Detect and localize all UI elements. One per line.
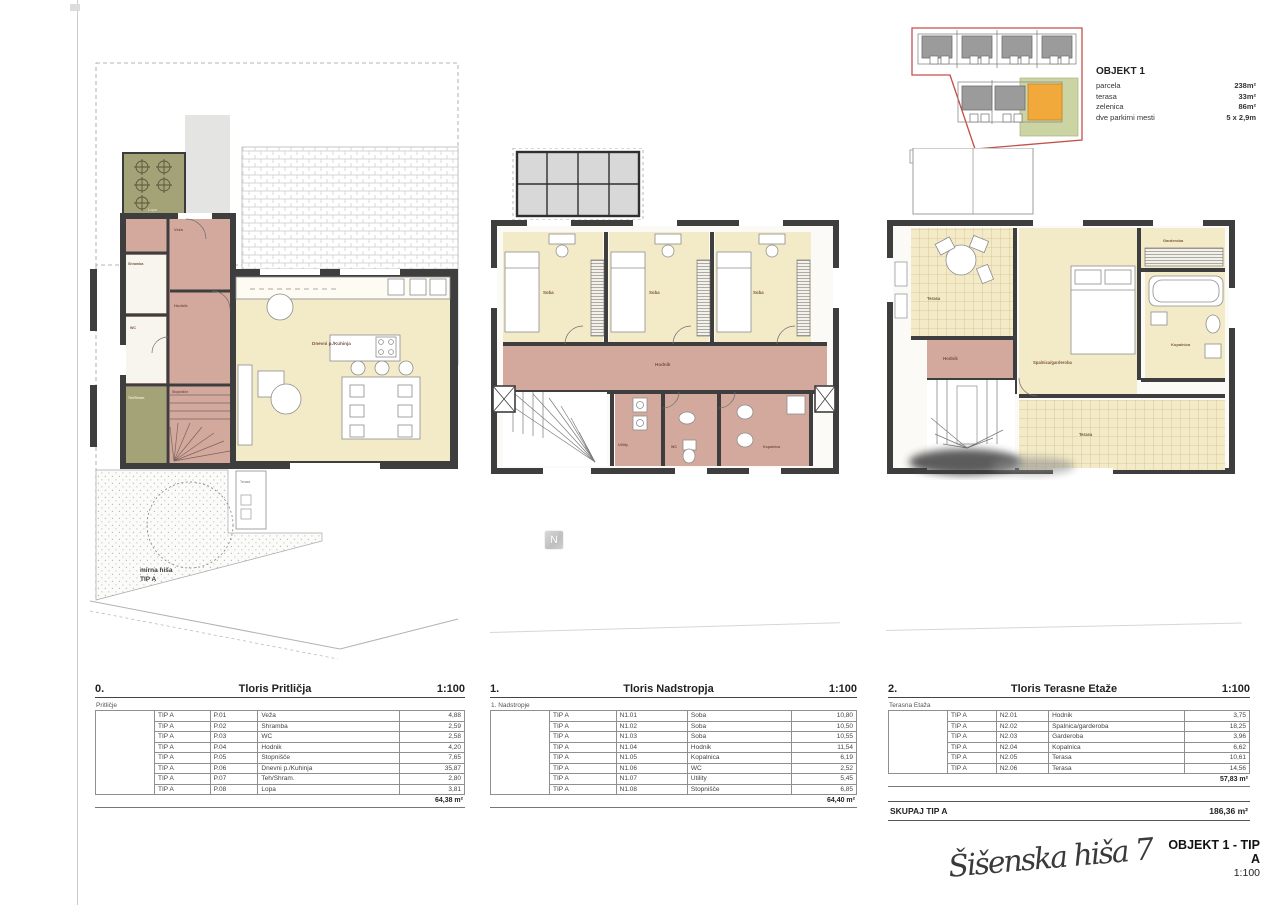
table-cell: Stopnišče	[258, 753, 400, 764]
survey-line	[490, 622, 840, 633]
table-cell: N2.04	[996, 742, 1048, 753]
table-cell: TIP A	[550, 721, 617, 732]
table-cell: N1.03	[616, 732, 687, 743]
sheet-scale: 1:100	[1162, 867, 1260, 879]
table-cell: TIP A	[550, 774, 617, 785]
area-table-ground: 0. Tloris Pritličja 1:100 Pritličje TIP …	[95, 683, 465, 808]
table-scale: 1:100	[415, 683, 465, 695]
table-cell: 6,19	[792, 753, 857, 764]
table-total: 64,38 m²	[95, 795, 465, 808]
room-label-kopalnica2: Kopalnica	[1171, 342, 1191, 347]
room-label-dnevni: Dnevni p./Kuhinja	[312, 341, 351, 346]
table-cell: Veža	[258, 711, 400, 722]
room-label-garderoba: Garderoba	[1163, 238, 1184, 243]
table-cell: P.02	[210, 721, 258, 732]
table-cell: Spalnica/garderoba	[1049, 721, 1185, 732]
table-cell: Kopalnica	[687, 753, 791, 764]
title-block: Šišenska hiša 7 OBJEKT 1 - TIP A 1:100	[948, 838, 1260, 879]
room-label-teh: Teh/Shram.	[128, 396, 145, 400]
table-cell: 4,88	[400, 711, 465, 722]
site-key-row: zelenica 86m²	[1096, 102, 1256, 113]
table-cell: N1.06	[616, 763, 687, 774]
table-cell: TIP A	[155, 732, 211, 743]
table-cell: N2.06	[996, 763, 1048, 774]
table-cell: Hodnik	[687, 742, 791, 753]
page-edge-line	[77, 0, 78, 905]
table-row: TIP AN1.01Soba10,80	[491, 711, 857, 722]
table-scale: 1:100	[1200, 683, 1250, 695]
room-table: TIP AP.01Veža4,88TIP AP.02Shramba2,59TIP…	[95, 710, 465, 795]
table-cell: N2.03	[996, 732, 1048, 743]
table-subtitle: 1. Nadstropje	[491, 702, 857, 709]
table-cell: TIP A	[155, 753, 211, 764]
room-label-spalnica: Spalnica/garderoba	[1033, 360, 1073, 365]
project-signature-logo: Šišenska hiša 7	[947, 832, 1154, 885]
site-key-row: parcela 238m²	[1096, 81, 1256, 92]
table-cell: 10,55	[792, 732, 857, 743]
type-swatch-cell	[96, 711, 155, 795]
room-label-terasa: Terasa	[240, 480, 250, 484]
table-cell: 10,50	[792, 721, 857, 732]
roof-outline	[913, 148, 1033, 214]
driveway-strip	[185, 115, 230, 215]
wardrobe-terrace	[1145, 248, 1223, 266]
table-cell: P.06	[210, 763, 258, 774]
table-total: 64,40 m²	[490, 795, 857, 808]
table-cell: Utility	[687, 774, 791, 785]
room-label-terasa-bottom: Terasa	[1079, 432, 1093, 437]
table-title: Tloris Terasne Etaže	[928, 683, 1200, 695]
room-label-shramba: Shramba	[128, 262, 144, 266]
site-key-title: OBJEKT 1	[1096, 66, 1256, 77]
table-row: TIP AP.01Veža4,88	[96, 711, 465, 722]
site-key-legend: OBJEKT 1 parcela 238m² terasa 33m² zelen…	[1096, 66, 1256, 123]
table-cell: N1.08	[616, 784, 687, 795]
table-cell: 3,75	[1185, 711, 1250, 722]
table-index: 0.	[95, 683, 135, 695]
room-label-utility: Utility	[618, 443, 628, 447]
table-cell: N2.05	[996, 753, 1048, 764]
table-cell: 7,65	[400, 753, 465, 764]
table-cell: TIP A	[550, 732, 617, 743]
table-cell: Soba	[687, 711, 791, 722]
table-cell: TIP A	[155, 742, 211, 753]
table-cell: 35,87	[400, 763, 465, 774]
room-label-hodnik2: Hodnik	[943, 356, 958, 361]
table-cell: Terasa	[1049, 753, 1185, 764]
page-corner-mark	[70, 4, 80, 11]
stairs-first	[503, 392, 607, 466]
table-cell: TIP A	[948, 721, 997, 732]
table-cell: Terasa	[1049, 763, 1185, 774]
garden-note-line2: TIP A	[140, 576, 157, 583]
site-key-row: terasa 33m²	[1096, 92, 1256, 103]
site-key-plan	[900, 22, 1100, 164]
table-cell: 10,61	[1185, 753, 1250, 764]
table-scale: 1:100	[807, 683, 857, 695]
table-cell: Shramba	[258, 721, 400, 732]
table-cell: 10,80	[792, 711, 857, 722]
room-label-soba3: Soba	[753, 290, 764, 295]
room-label-stopnisce: Stopnišče	[172, 390, 188, 394]
table-cell: N1.07	[616, 774, 687, 785]
table-cell: P.07	[210, 774, 258, 785]
garden-area	[96, 470, 322, 600]
summary-label: SKUPAJ TIP A	[890, 806, 947, 816]
table-subtitle: Pritličje	[96, 702, 465, 709]
site-key-row: dve parkirni mesti 5 x 2,9m	[1096, 113, 1256, 124]
table-cell: TIP A	[948, 753, 997, 764]
room-lopa: Lopa	[123, 153, 185, 217]
table-index: 1.	[490, 683, 530, 695]
terrace-floor-plan: Terasa Hodnik Spalnica/garderoba Gardero…	[883, 148, 1238, 480]
room-table: TIP AN1.01Soba10,80TIP AN1.02Soba10,50TI…	[490, 710, 857, 795]
survey-line	[886, 623, 1242, 631]
room-label-lopa: Lopa	[148, 207, 158, 212]
table-cell: 14,56	[1185, 763, 1250, 774]
terrace-hatch-area	[242, 147, 458, 269]
table-cell: WC	[258, 732, 400, 743]
table-cell: 4,20	[400, 742, 465, 753]
table-cell: 2,59	[400, 721, 465, 732]
table-cell: P.08	[210, 784, 258, 795]
ground-floor-plan: mirna hiša TIP A Lopa	[90, 55, 465, 665]
table-cell: 6,62	[1185, 742, 1250, 753]
room-label-kopalnica1: Kopalnica	[763, 445, 781, 449]
room-label-hodnik1: Hodnik	[655, 362, 671, 367]
table-cell: Hodnik	[258, 742, 400, 753]
area-table-first: 1. Tloris Nadstropja 1:100 1. Nadstropje…	[490, 683, 857, 808]
room-label-terasa-top: Terasa	[927, 296, 941, 301]
table-cell: 2,52	[792, 763, 857, 774]
type-swatch-cell	[889, 711, 948, 774]
table-cell: N2.02	[996, 721, 1048, 732]
table-cell: Hodnik	[1049, 711, 1185, 722]
table-cell: TIP A	[550, 742, 617, 753]
room-label-soba1: Soba	[543, 290, 554, 295]
table-header: 1. Tloris Nadstropja 1:100	[490, 683, 857, 698]
room-label-soba2: Soba	[649, 290, 660, 295]
table-cell: P.04	[210, 742, 258, 753]
table-cell: TIP A	[948, 763, 997, 774]
room-table: TIP AN2.01Hodnik3,75TIP AN2.02Spalnica/g…	[888, 710, 1250, 774]
table-index: 2.	[888, 683, 928, 695]
sheet-title: OBJEKT 1 - TIP A	[1162, 838, 1260, 866]
table-cell: WC	[687, 763, 791, 774]
garden-note-line1: mirna hiša	[140, 567, 173, 574]
table-cell: N1.02	[616, 721, 687, 732]
table-cell: 11,54	[792, 742, 857, 753]
table-cell: Soba	[687, 732, 791, 743]
table-cell: Dnevni p./Kuhinja	[258, 763, 400, 774]
row-house-block-upper	[918, 30, 1076, 68]
table-cell: N1.05	[616, 753, 687, 764]
table-title: Tloris Pritličja	[135, 683, 415, 695]
row-house-block-lower	[958, 78, 1078, 136]
table-total: 57,83 m²	[888, 774, 1250, 787]
table-cell: Soba	[687, 721, 791, 732]
table-cell: TIP A	[155, 763, 211, 774]
table-cell: Stopnišče	[687, 784, 791, 795]
table-row: TIP AN2.01Hodnik3,75	[889, 711, 1250, 722]
table-cell: P.05	[210, 753, 258, 764]
table-cell: TIP A	[155, 711, 211, 722]
table-cell: 3,96	[1185, 732, 1250, 743]
table-cell: Teh/Shram.	[258, 774, 400, 785]
table-cell: TIP A	[155, 774, 211, 785]
room-label-wc: WC	[130, 326, 136, 330]
table-cell: Kopalnica	[1049, 742, 1185, 753]
table-cell: 5,45	[792, 774, 857, 785]
table-cell: 2,80	[400, 774, 465, 785]
table-cell: TIP A	[948, 711, 997, 722]
table-title: Tloris Nadstropja	[530, 683, 807, 695]
table-cell: TIP A	[948, 732, 997, 743]
highlighted-unit-objekt1	[1028, 84, 1062, 120]
table-cell: TIP A	[550, 753, 617, 764]
table-subtitle: Terasna Etaža	[889, 702, 1250, 709]
table-cell: 6,85	[792, 784, 857, 795]
summary-value: 186,36 m²	[1209, 806, 1248, 816]
summary-row: SKUPAJ TIP A 186,36 m²	[888, 801, 1250, 821]
table-cell: P.03	[210, 732, 258, 743]
table-cell: TIP A	[550, 763, 617, 774]
table-cell: TIP A	[155, 721, 211, 732]
room-label-veza: Veža	[174, 227, 184, 232]
table-cell: N1.04	[616, 742, 687, 753]
table-cell: N2.01	[996, 711, 1048, 722]
table-cell: N1.01	[616, 711, 687, 722]
table-header: 2. Tloris Terasne Etaže 1:100	[888, 683, 1250, 698]
table-header: 0. Tloris Pritličja 1:100	[95, 683, 465, 698]
table-cell: 18,25	[1185, 721, 1250, 732]
area-table-terrace: 2. Tloris Terasne Etaže 1:100 Terasna Et…	[888, 683, 1250, 821]
north-indicator-icon: N	[545, 531, 563, 549]
table-cell: Garderoba	[1049, 732, 1185, 743]
type-swatch-cell	[491, 711, 550, 795]
furniture-bedroom	[1071, 266, 1135, 354]
first-floor-plan: Soba Soba Soba Hodnik Utility WC Kopalni…	[487, 148, 842, 480]
room-label-hodnik: Hodnik	[174, 303, 188, 308]
table-cell: TIP A	[155, 784, 211, 795]
table-cell: P.01	[210, 711, 258, 722]
table-cell: Lopa	[258, 784, 400, 795]
table-cell: TIP A	[550, 784, 617, 795]
pergola	[513, 148, 643, 220]
table-cell: 2,58	[400, 732, 465, 743]
table-cell: TIP A	[550, 711, 617, 722]
room-label-wc1: WC	[671, 445, 677, 449]
table-cell: 3,81	[400, 784, 465, 795]
table-cell: TIP A	[948, 742, 997, 753]
plot-boundary	[90, 601, 458, 659]
